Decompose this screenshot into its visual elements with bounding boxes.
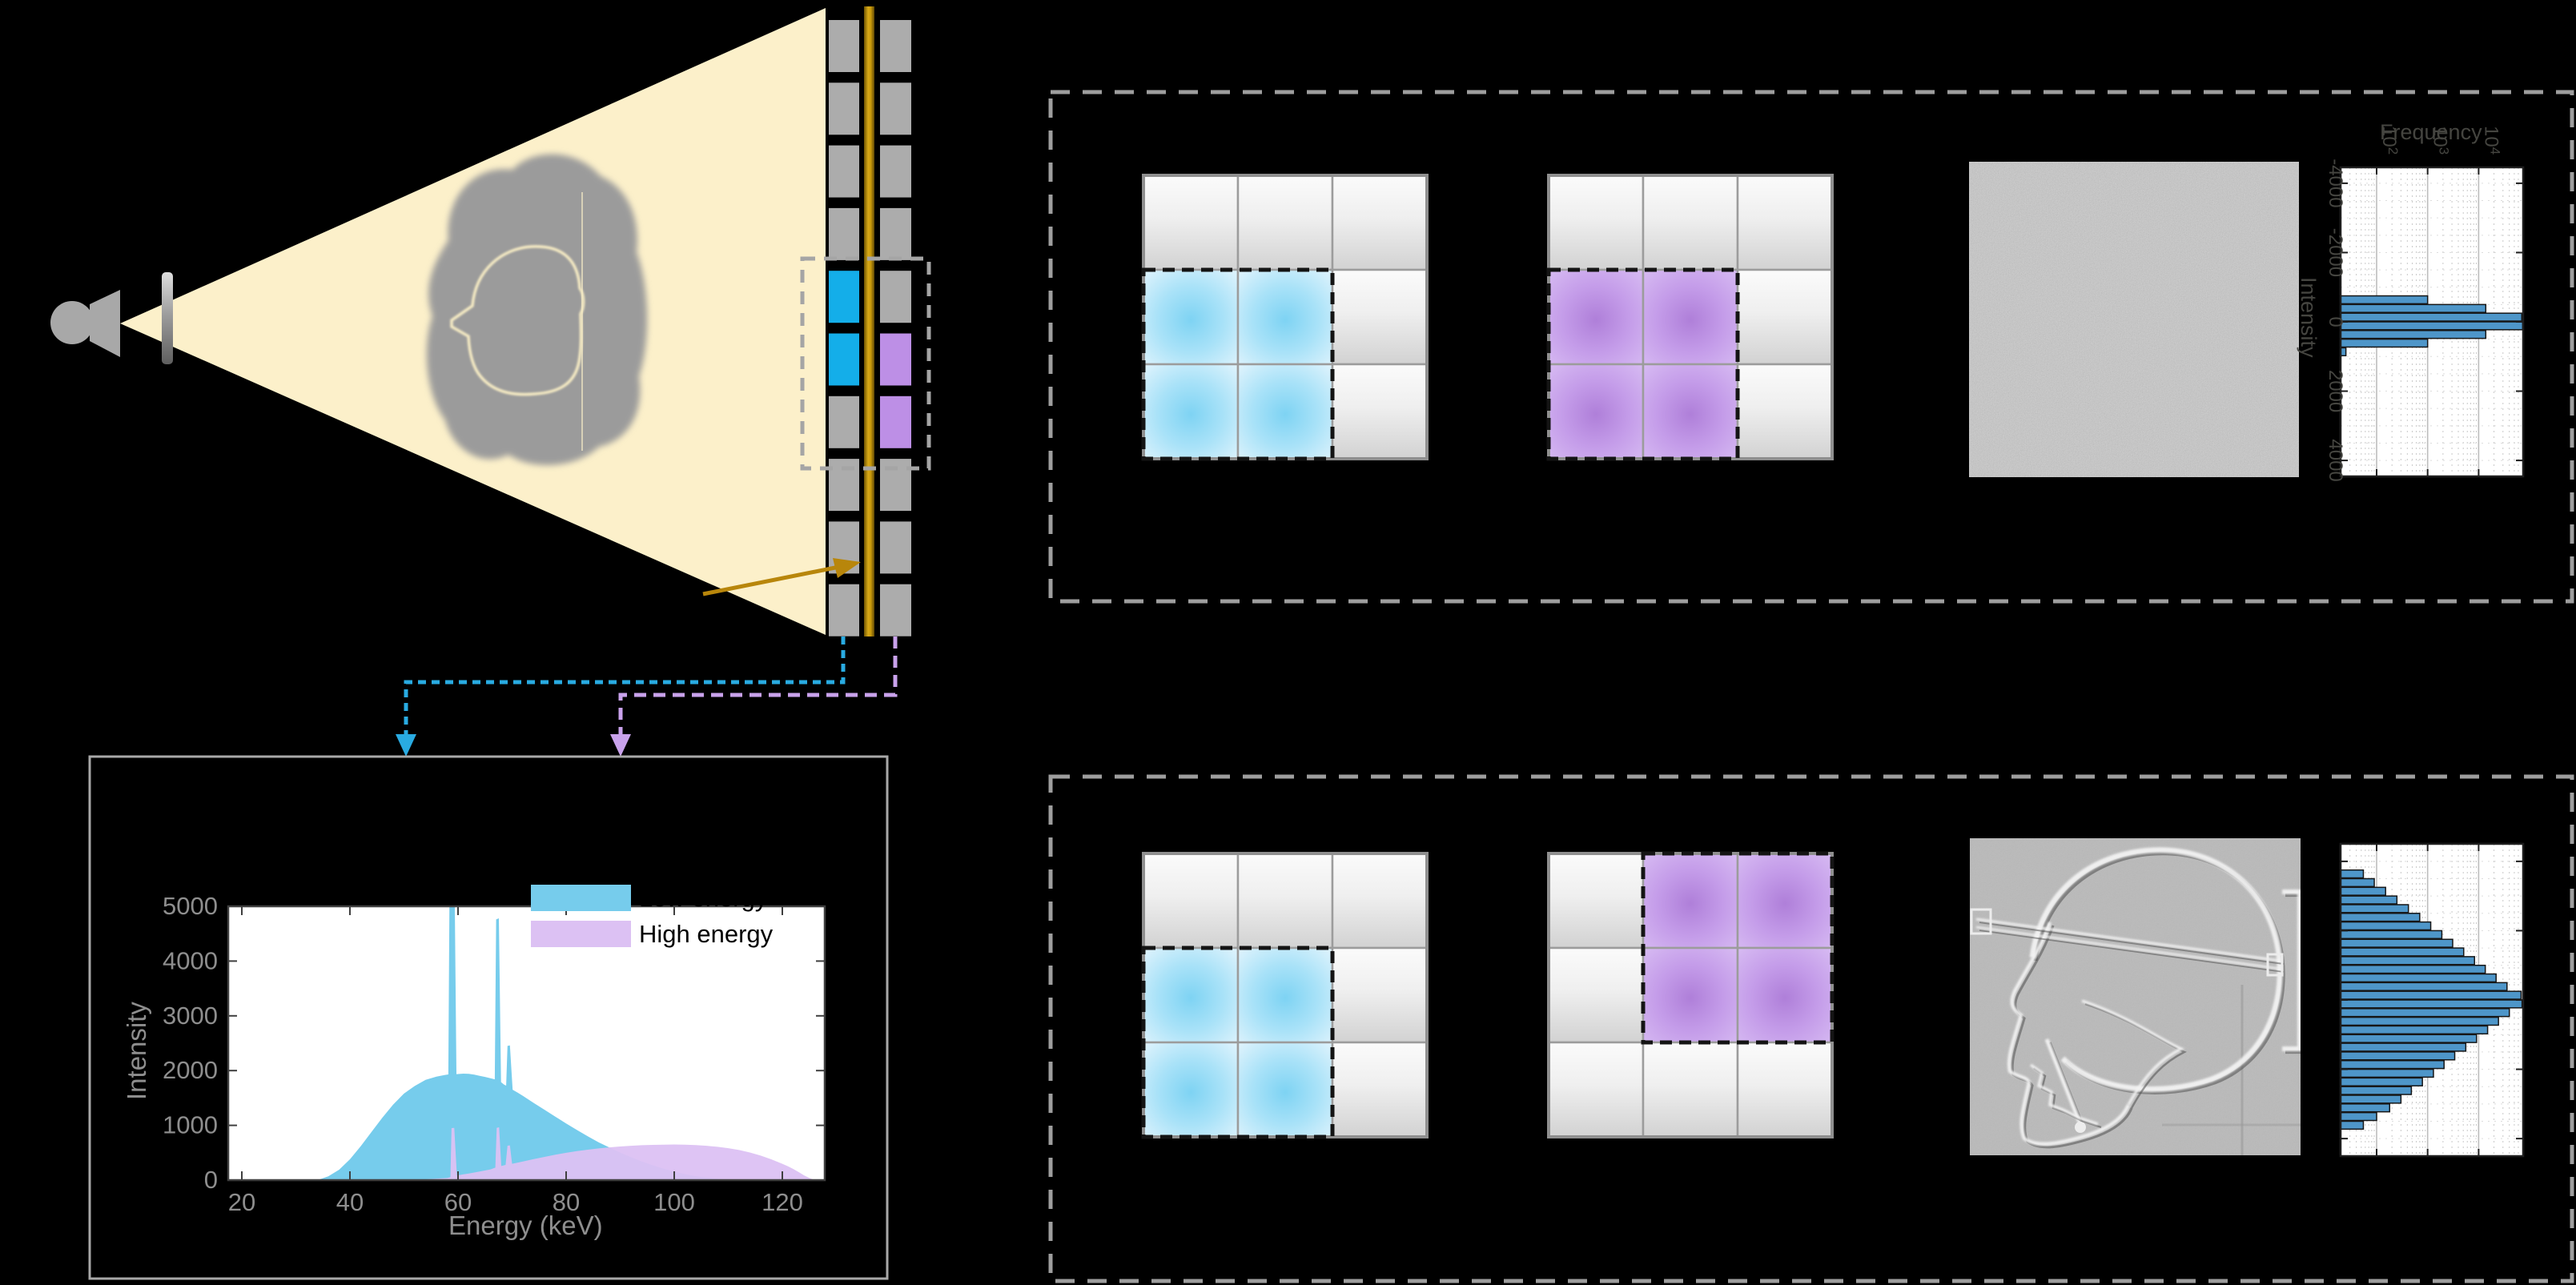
- binned-pixel-high: [1738, 853, 1832, 948]
- hist-bar: [2341, 331, 2486, 339]
- hist-bar: [2341, 1034, 2477, 1042]
- detector-grid-pixel: [1143, 853, 1238, 948]
- hist-freq-tick-label: 104: [2480, 126, 2502, 155]
- detector-grid-pixel: [1332, 1042, 1427, 1137]
- hist-bar: [2341, 1104, 2389, 1112]
- front-detector-pixel: [829, 271, 859, 323]
- hist-bar: [2341, 1121, 2363, 1129]
- x-tick-label: 40: [336, 1188, 364, 1216]
- rear-detector-pixel: [880, 146, 911, 198]
- y-tick-label: 5000: [163, 892, 218, 920]
- detector-grid-pixel: [1238, 175, 1332, 270]
- front-detector-pixel: [829, 334, 859, 386]
- hist-bar: [2341, 322, 2522, 330]
- hist-bar: [2341, 896, 2397, 904]
- binned-pixel-high: [1643, 364, 1738, 459]
- binned-pixel-high: [1549, 364, 1643, 459]
- hist-bar: [2341, 1000, 2522, 1008]
- binned-pixel-low: [1238, 364, 1332, 459]
- hist-bar: [2341, 339, 2428, 347]
- detector-grid-pixel: [1738, 1042, 1832, 1137]
- source-collimator: [90, 290, 120, 357]
- y-tick-label: 4000: [163, 946, 218, 974]
- hist-bar: [2341, 1018, 2498, 1026]
- low-energy-connector-head: [396, 734, 416, 757]
- top-high-energy-grid: [1549, 175, 1832, 459]
- binned-pixel-high: [1643, 948, 1738, 1042]
- detector-grid-pixel: [1738, 364, 1832, 459]
- beam-filter: [162, 272, 173, 364]
- detector-grid-pixel: [1332, 270, 1427, 364]
- binned-pixel-low: [1143, 364, 1238, 459]
- front-detector-pixel: [829, 396, 859, 448]
- hist-bar: [2341, 1061, 2444, 1069]
- hist-bar: [2341, 991, 2521, 999]
- hist-bar: [2341, 974, 2496, 982]
- binned-pixel-high: [1643, 270, 1738, 364]
- y-tick-label: 0: [204, 1166, 218, 1194]
- hist-bar: [2341, 879, 2374, 887]
- binned-pixel-low: [1143, 948, 1238, 1042]
- hist-bar: [2341, 939, 2453, 947]
- scintillator-bar: [864, 6, 874, 636]
- detector-grid-pixel: [1549, 948, 1643, 1042]
- hist-bar: [2341, 1009, 2510, 1017]
- bottom-high-energy-grid: [1549, 853, 1832, 1137]
- hist-bar: [2341, 922, 2431, 930]
- figure-canvas: 2040608010012001000200030004000500010210…: [0, 0, 2576, 1285]
- detector-grid-pixel: [1332, 948, 1427, 1042]
- rear-detector-pixel: [880, 82, 911, 135]
- spectrum-panel: 20406080100120010002000300040005000: [90, 757, 887, 1279]
- detector-grid-pixel: [1738, 270, 1832, 364]
- low-energy-connector-line: [406, 636, 843, 735]
- front-detector-pixel: [829, 20, 859, 72]
- y-tick-label: 3000: [163, 1002, 218, 1030]
- front-detector-pixel: [829, 82, 859, 135]
- rod-tip: [2075, 1122, 2086, 1133]
- binned-pixel-low: [1238, 1042, 1332, 1137]
- detector-grid-pixel: [1549, 1042, 1643, 1137]
- y-tick-label: 1000: [163, 1111, 218, 1139]
- rear-detector-pixel: [880, 584, 911, 636]
- detector-grid-pixel: [1643, 1042, 1738, 1137]
- x-tick-label: 80: [553, 1188, 580, 1216]
- hist-bar: [2341, 1043, 2465, 1051]
- detector-grid-pixel: [1332, 175, 1427, 270]
- binned-pixel-low: [1143, 270, 1238, 364]
- hist-freq-tick-label: 102: [2378, 126, 2401, 155]
- detector-grid-pixel: [1643, 175, 1738, 270]
- detector-grid-pixel: [1549, 175, 1643, 270]
- y-tick-label: 2000: [163, 1056, 218, 1084]
- binned-pixel-low: [1238, 270, 1332, 364]
- hist-bar: [2341, 905, 2409, 913]
- rear-detector-pixel: [880, 396, 911, 448]
- detector-grid-pixel: [1332, 853, 1427, 948]
- hist-intensity-tick-label: 4000: [2325, 439, 2346, 481]
- rear-detector-pixel: [880, 20, 911, 72]
- hist-bar: [2341, 1095, 2401, 1103]
- hist-bar: [2341, 1052, 2455, 1060]
- hist-bar: [2341, 914, 2420, 922]
- registered-histogram: 102103104-4000-2000020004000: [2325, 126, 2523, 482]
- hist-bar: [2341, 948, 2464, 956]
- hist-bar: [2341, 870, 2363, 878]
- binned-pixel-high: [1643, 853, 1738, 948]
- high-energy-connector-line: [621, 636, 895, 735]
- binned-pixel-high: [1549, 270, 1643, 364]
- skull-difference-image: [1970, 838, 2303, 1155]
- x-tick-label: 100: [653, 1188, 695, 1216]
- x-tick-label: 60: [444, 1188, 472, 1216]
- rear-detector-pixel: [880, 208, 911, 260]
- detector-grid-pixel: [1332, 364, 1427, 459]
- high-energy-connector-head: [610, 734, 631, 757]
- hist-intensity-tick-label: 2000: [2325, 370, 2346, 412]
- x-tick-label: 20: [228, 1188, 255, 1216]
- hist-bar: [2341, 1086, 2411, 1094]
- hist-intensity-tick-label: -4000: [2325, 159, 2346, 207]
- high-energy-connector: [610, 636, 895, 757]
- x-tick-label: 120: [762, 1188, 803, 1216]
- binned-pixel-low: [1143, 1042, 1238, 1137]
- hist-bar: [2341, 982, 2507, 990]
- top-low-energy-grid: [1143, 175, 1427, 459]
- legend-high-swatch: [531, 921, 631, 947]
- hist-intensity-tick-label: -2000: [2325, 228, 2346, 277]
- hist-bar: [2341, 966, 2486, 974]
- hist-bar: [2341, 930, 2441, 938]
- front-detector-pixel: [829, 208, 859, 260]
- hist-bar: [2341, 887, 2385, 895]
- detector-grid-pixel: [1549, 853, 1643, 948]
- hist-bar: [2341, 296, 2428, 304]
- head-phantom: [427, 155, 647, 465]
- detector-grid-pixel: [1238, 853, 1332, 948]
- bottom-low-energy-grid: [1143, 853, 1427, 1137]
- detector-grid-pixel: [1738, 175, 1832, 270]
- legend-low-swatch: [531, 885, 631, 911]
- source-tube: [50, 301, 94, 344]
- detector-grid-pixel: [1143, 175, 1238, 270]
- hist-bar: [2341, 1070, 2433, 1078]
- front-detector-pixel: [829, 584, 859, 636]
- rear-detector-pixel: [880, 521, 911, 573]
- xray-source: [50, 290, 120, 357]
- phantom-body: [427, 155, 647, 465]
- hist-bar: [2341, 1026, 2488, 1034]
- binned-pixel-high: [1738, 948, 1832, 1042]
- hist-bar: [2341, 304, 2486, 312]
- hist-bar: [2341, 1113, 2377, 1121]
- hist-freq-tick-label: 103: [2429, 126, 2452, 155]
- rear-detector-pixel: [880, 334, 911, 386]
- unregistered-histogram: [2341, 844, 2523, 1156]
- front-detector-pixel: [829, 146, 859, 198]
- hist-bar: [2341, 313, 2522, 321]
- rear-detector-pixel: [880, 271, 911, 323]
- hist-bar: [2341, 1078, 2422, 1086]
- hist-bar: [2341, 957, 2474, 965]
- uniform-difference-noise: [1969, 162, 2299, 477]
- hist-intensity-tick-label: 0: [2325, 316, 2346, 327]
- binned-pixel-low: [1238, 948, 1332, 1042]
